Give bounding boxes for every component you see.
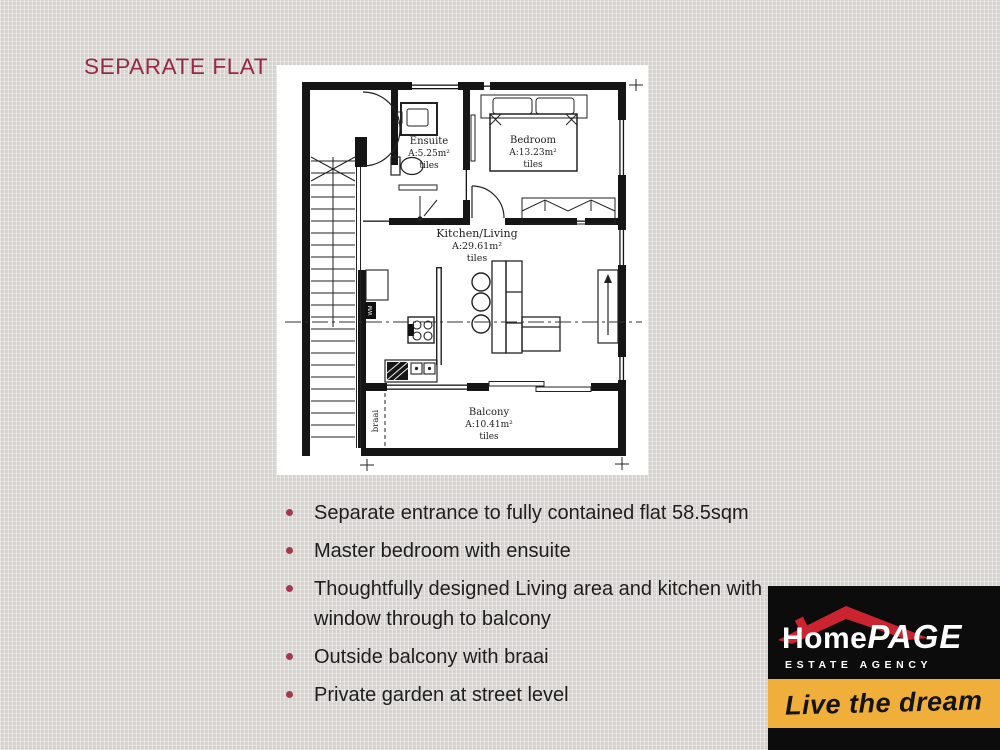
- bullet-list: Separate entrance to fully contained fla…: [283, 498, 775, 718]
- brand-page: PAGE: [867, 618, 962, 655]
- bullet-dot-icon: [286, 585, 293, 592]
- floorplan-svg: Ensuite A:5.25m² tiles: [277, 65, 648, 475]
- room-area: A:29.61m²: [451, 241, 502, 252]
- room-area: A:10.41m²: [464, 420, 513, 430]
- bullet-dot-icon: [286, 547, 293, 554]
- bullet-text: Outside balcony with braai: [314, 646, 549, 668]
- room-label: Balcony: [469, 407, 510, 418]
- washing-machine: WM: [365, 302, 376, 319]
- room-floor: tiles: [467, 253, 488, 264]
- bullet-dot-icon: [286, 653, 293, 660]
- sliding-cabinet: [598, 270, 618, 343]
- page-title: SEPARATE FLAT: [84, 54, 268, 80]
- tagline-band: Live the dream: [768, 679, 1000, 728]
- cabinet: [366, 270, 388, 300]
- brand-subtitle: ESTATE AGENCY: [785, 659, 932, 671]
- room-label: Kitchen/Living: [436, 227, 517, 240]
- shelf: [399, 185, 437, 190]
- stove: [408, 317, 434, 343]
- shower-symbol: [418, 196, 443, 221]
- list-item: Private garden at street level: [283, 680, 775, 710]
- room-label: Ensuite: [410, 136, 449, 147]
- bedroom-door: [472, 186, 504, 218]
- bullet-dot-icon: [286, 691, 293, 698]
- braai-label: braai: [371, 410, 381, 433]
- sliding-door: [489, 382, 591, 392]
- balcony: braai Balcony A:10.41m² tiles: [371, 382, 591, 449]
- bullet-text: Master bedroom with ensuite: [314, 540, 571, 562]
- room-area: A:5.25m²: [407, 149, 450, 159]
- mirror: [471, 115, 475, 161]
- kitchen-living: WM Kitchen/Living A:29.61m² tiles: [365, 227, 618, 382]
- ensuite: Ensuite A:5.25m² tiles: [391, 103, 450, 221]
- brand-name: HomePAGE: [782, 618, 994, 656]
- stairs: [311, 157, 361, 448]
- list-item: Separate entrance to fully contained fla…: [283, 498, 775, 528]
- room-floor: tiles: [523, 160, 543, 170]
- basin: [397, 103, 437, 135]
- room-floor: tiles: [419, 161, 439, 171]
- bullet-text: Thoughtfully designed Living area and ki…: [314, 578, 762, 630]
- bedroom: Bedroom A:13.23m² tiles: [471, 95, 615, 224]
- list-item: Master bedroom with ensuite: [283, 536, 775, 566]
- bullet-text: Private garden at street level: [314, 684, 569, 706]
- list-item: Outside balcony with braai: [283, 642, 775, 672]
- bullet-text: Separate entrance to fully contained fla…: [314, 502, 749, 524]
- room-label: Bedroom: [510, 135, 556, 146]
- bullet-dot-icon: [286, 509, 293, 516]
- floorplan-image: Ensuite A:5.25m² tiles: [277, 65, 648, 475]
- homepage-logo: HomePAGE ESTATE AGENCY Live the dream: [768, 586, 1000, 750]
- tagline-text: Live the dream: [785, 685, 983, 721]
- stools: [472, 273, 490, 333]
- sofa: [492, 261, 560, 353]
- counter: [436, 267, 442, 365]
- wm-label: WM: [368, 305, 374, 315]
- kitchen-sink: [385, 360, 437, 382]
- room-area: A:13.23m²: [508, 148, 557, 158]
- list-item: Thoughtfully designed Living area and ki…: [283, 574, 775, 634]
- room-floor: tiles: [479, 432, 499, 442]
- brand-home: Home: [782, 622, 867, 655]
- slide: SEPARATE FLAT: [0, 0, 1000, 750]
